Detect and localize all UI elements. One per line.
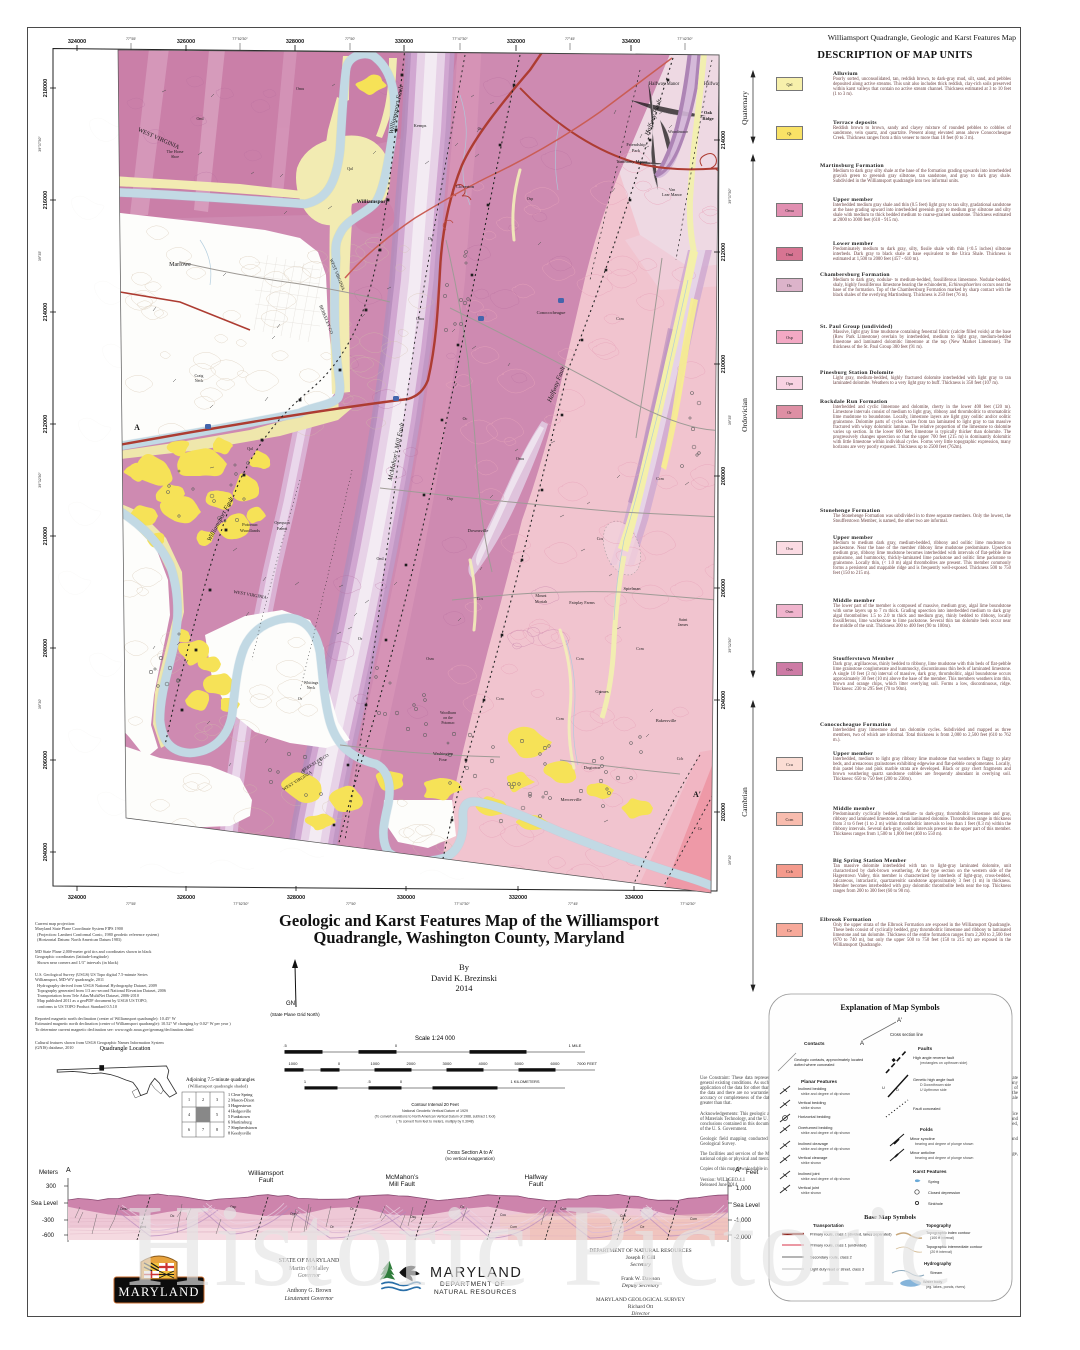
svg-text:77°55′: 77°55′ (126, 902, 136, 906)
svg-text:A: A (134, 423, 140, 432)
svg-text:6 Martinsburg: 6 Martinsburg (228, 1120, 253, 1125)
svg-text:218000: 218000 (43, 79, 49, 97)
svg-text:Cloverton: Cloverton (456, 184, 475, 189)
svg-text:328000: 328000 (286, 39, 304, 45)
svg-text:6000: 6000 (551, 1061, 561, 1066)
svg-text:Ccm: Ccm (496, 696, 504, 701)
svg-text:204000: 204000 (43, 843, 49, 861)
svg-text:Oml: Oml (376, 556, 384, 561)
svg-text:324000: 324000 (68, 895, 86, 901)
svg-text:208000: 208000 (43, 639, 49, 657)
svg-text:Ccm: Ccm (576, 656, 584, 661)
svg-text:1: 1 (188, 1097, 190, 1102)
svg-text:strike shown: strike shown (801, 1106, 821, 1110)
svg-text:(To convert elevations to Nort: (To convert elevations to North American… (375, 1115, 496, 1119)
svg-text:77°55′: 77°55′ (126, 37, 136, 41)
svg-text:Williamsport: Williamsport (356, 199, 387, 205)
svg-text:Genetic high angle fault: Genetic high angle fault (913, 1077, 955, 1082)
svg-text:strike shown: strike shown (801, 1161, 821, 1165)
svg-text:1 KILOMETERS: 1 KILOMETERS (510, 1079, 539, 1084)
svg-text:39°37′30″: 39°37′30″ (728, 188, 732, 204)
svg-text:Shoe: Shoe (171, 154, 179, 159)
svg-text:Conococheague: Conococheague (537, 310, 566, 315)
svg-text:39°35′: 39°35′ (728, 415, 732, 425)
svg-text:Folds: Folds (920, 1127, 933, 1133)
svg-text:39°30′: 39°30′ (728, 855, 732, 865)
svg-text:Neck: Neck (195, 378, 203, 383)
svg-text:Ccb: Ccb (677, 756, 683, 761)
svg-text:39°35′: 39°35′ (38, 251, 42, 261)
svg-text:strike and degree of dip shown: strike and degree of dip shown (801, 1131, 850, 1135)
svg-text:Quadrangle Location: Quadrangle Location (100, 1046, 151, 1052)
svg-text:7000 FEET: 7000 FEET (577, 1061, 598, 1066)
svg-text:Or: Or (298, 696, 303, 701)
svg-text:Grimes: Grimes (595, 689, 608, 694)
svg-text:Bakersville: Bakersville (656, 718, 677, 723)
svg-text:Oc: Oc (463, 416, 468, 421)
svg-text:Spielman: Spielman (624, 586, 642, 591)
svg-text:Ordovician: Ordovician (740, 398, 749, 432)
svg-text:James: James (678, 622, 689, 627)
svg-text:334000: 334000 (625, 895, 643, 901)
svg-text:212000: 212000 (43, 415, 49, 433)
svg-text:Inclined joint: Inclined joint (798, 1171, 821, 1176)
svg-text:bearing and degree of plunge s: bearing and degree of plunge shown (915, 1142, 973, 1146)
svg-text:Scale 1:24 000: Scale 1:24 000 (415, 1036, 456, 1042)
svg-text:Halfway Manor: Halfway Manor (649, 82, 680, 87)
svg-text:(rectangles on upthrown side): (rectangles on upthrown side) (920, 1061, 967, 1065)
svg-text:Woodlands: Woodlands (240, 528, 260, 533)
svg-text:39°32′30″: 39°32′30″ (728, 637, 732, 653)
svg-text:77°50′: 77°50′ (346, 902, 356, 906)
svg-text:dotted where concealed: dotted where concealed (794, 1063, 834, 1067)
svg-text:Ccu: Ccu (477, 596, 483, 601)
svg-text:1000: 1000 (289, 1061, 299, 1066)
svg-text:0: 0 (395, 1043, 398, 1048)
svg-text:77°45′: 77°45′ (568, 902, 578, 906)
svg-text:216000: 216000 (43, 191, 49, 209)
svg-text:Minor syncline: Minor syncline (910, 1136, 935, 1141)
svg-text:77°47′30″: 77°47′30″ (454, 902, 470, 906)
svg-text:3 Hagerstown: 3 Hagerstown (228, 1103, 252, 1108)
svg-text:GN: GN (286, 1001, 295, 1007)
svg-text:328000: 328000 (287, 895, 305, 901)
svg-text:2000: 2000 (407, 1061, 417, 1066)
svg-text:214000: 214000 (721, 131, 727, 149)
svg-text:Woodburn: Woodburn (440, 711, 456, 715)
svg-text:2: 2 (202, 1097, 204, 1102)
svg-text:Adjoining 7.5-minute quadrangl: Adjoining 7.5-minute quadrangles (186, 1078, 255, 1083)
svg-text:Quaternary: Quaternary (740, 91, 749, 125)
svg-text:Oak: Oak (704, 110, 713, 115)
svg-text:A′: A′ (897, 1018, 903, 1024)
svg-text:(Williamsport quadrangle shade: (Williamsport quadrangle shaded) (188, 1084, 248, 1089)
svg-text:5 Funkstown: 5 Funkstown (228, 1114, 251, 1119)
svg-text:77°52′30″: 77°52′30″ (232, 37, 248, 41)
svg-text:334000: 334000 (622, 39, 640, 45)
svg-text:Downsville: Downsville (468, 528, 489, 533)
svg-text:Washington: Washington (433, 751, 454, 756)
svg-text:Or: Or (358, 636, 363, 641)
svg-text:Omu: Omu (416, 316, 424, 321)
svg-text:6: 6 (188, 1127, 190, 1132)
svg-text:Mercerville: Mercerville (561, 797, 582, 802)
svg-text:Qal: Qal (247, 446, 254, 451)
svg-text:Osm: Osm (426, 656, 434, 661)
svg-text:206000: 206000 (721, 579, 727, 597)
svg-text:Horizontal bedding: Horizontal bedding (798, 1114, 830, 1119)
svg-text:Dogtown: Dogtown (584, 765, 601, 770)
svg-text:D: D (896, 1087, 899, 1092)
svg-text:77°42′30″: 77°42′30″ (677, 37, 693, 41)
svg-text:0: 0 (400, 1079, 403, 1084)
svg-text:39°32′30″: 39°32′30″ (38, 472, 42, 488)
svg-text:3: 3 (216, 1097, 218, 1102)
svg-text:Omu: Omu (516, 456, 524, 461)
svg-text:strike and degree of dip shown: strike and degree of dip shown (801, 1092, 850, 1096)
svg-text:Ccm: Ccm (616, 316, 624, 321)
svg-text:High angle reverse fault: High angle reverse fault (913, 1055, 955, 1060)
svg-text:7: 7 (202, 1127, 204, 1132)
svg-text:212000: 212000 (721, 243, 727, 261)
svg-text:Mount: Mount (535, 593, 547, 598)
svg-text:Friendship: Friendship (626, 142, 646, 147)
svg-text:D Downthrown side: D Downthrown side (920, 1083, 951, 1087)
svg-text:8 Keedysville: 8 Keedysville (228, 1131, 251, 1136)
svg-text:Contour Interval 20 Feet: Contour Interval 20 Feet (411, 1102, 459, 1107)
svg-text:Ccm: Ccm (636, 646, 644, 651)
svg-text:7 Shepherdstown: 7 Shepherdstown (228, 1125, 258, 1130)
svg-text:202000: 202000 (721, 803, 727, 821)
svg-text:Ce: Ce (698, 826, 703, 831)
svg-text:on the: on the (443, 716, 453, 720)
svg-text:Potomac: Potomac (441, 721, 455, 725)
svg-text:Marlowe: Marlowe (169, 262, 191, 268)
svg-text:332000: 332000 (509, 895, 527, 901)
svg-text:Omu: Omu (296, 86, 304, 91)
svg-text:Opequon: Opequon (274, 520, 290, 525)
svg-text:Woodmoor: Woodmoor (668, 129, 689, 134)
svg-text:(State Plane Grid North): (State Plane Grid North) (270, 1012, 320, 1017)
svg-text:210000: 210000 (43, 527, 49, 545)
svg-text:Inclined cleavage: Inclined cleavage (798, 1141, 828, 1146)
svg-text:Farms: Farms (277, 526, 288, 531)
svg-text:Park: Park (632, 148, 641, 153)
svg-text:1 MILE: 1 MILE (569, 1043, 582, 1048)
svg-text:Minor anticline: Minor anticline (910, 1150, 935, 1155)
svg-text:330000: 330000 (395, 39, 413, 45)
svg-text:Ccu: Ccu (597, 536, 603, 541)
svg-text:Potomac: Potomac (242, 522, 258, 527)
svg-text:208000: 208000 (721, 467, 727, 485)
svg-text:strike and degree of dip shown: strike and degree of dip shown (801, 1147, 850, 1151)
svg-text:Cross section line: Cross section line (890, 1032, 924, 1037)
svg-text:Fairplay Farms: Fairplay Farms (569, 600, 595, 605)
svg-text:Oc: Oc (478, 126, 483, 131)
svg-text:206000: 206000 (43, 751, 49, 769)
svg-text:Ccm: Ccm (656, 476, 664, 481)
svg-text:77°50′: 77°50′ (345, 37, 355, 41)
svg-text:77°45′: 77°45′ (565, 37, 575, 41)
svg-text:1 Clear Spring: 1 Clear Spring (228, 1092, 253, 1097)
svg-text:Fault concealed: Fault concealed (913, 1106, 940, 1111)
svg-text:bearing and degree of plunge s: bearing and degree of plunge shown (915, 1156, 973, 1160)
svg-text:326000: 326000 (177, 895, 195, 901)
svg-text:2 Mason-Dixon: 2 Mason-Dixon (228, 1098, 255, 1103)
svg-text:332000: 332000 (507, 39, 525, 45)
svg-text:Faults: Faults (918, 1046, 932, 1052)
svg-text:Oml: Oml (196, 116, 204, 121)
svg-text:Neck: Neck (307, 685, 315, 690)
svg-text:204000: 204000 (721, 691, 727, 709)
svg-text:5: 5 (216, 1112, 218, 1117)
svg-text:U Upthrown side: U Upthrown side (920, 1088, 947, 1092)
svg-text:0: 0 (338, 1061, 341, 1066)
svg-text:A: A (860, 1041, 864, 1047)
svg-text:Overturned bedding: Overturned bedding (798, 1125, 832, 1130)
svg-text:5000: 5000 (515, 1061, 525, 1066)
svg-text:4 Hedgesville: 4 Hedgesville (228, 1109, 251, 1114)
svg-text:Vertical cleavage: Vertical cleavage (798, 1155, 827, 1160)
svg-text:A: A (66, 1167, 71, 1174)
svg-text:Lear Manor: Lear Manor (662, 192, 682, 197)
svg-text:324000: 324000 (68, 39, 86, 45)
svg-text:77°47′30″: 77°47′30″ (452, 37, 468, 41)
svg-text:Contacts: Contacts (804, 1041, 825, 1047)
svg-text:Kemps: Kemps (414, 123, 427, 128)
svg-text:4000: 4000 (479, 1061, 489, 1066)
svg-text:326000: 326000 (177, 39, 195, 45)
svg-text:( To convert from feet to mete: ( To convert from feet to meters, multip… (396, 1120, 473, 1124)
svg-text:Cambrian: Cambrian (740, 787, 749, 817)
svg-text:8: 8 (216, 1127, 218, 1132)
svg-text:Osp: Osp (447, 496, 453, 501)
svg-text:4: 4 (188, 1112, 191, 1117)
svg-text:Or: Or (428, 236, 433, 241)
svg-text:Tammany Manor: Tammany Manor (616, 159, 648, 164)
svg-text:Osp: Osp (527, 196, 533, 201)
svg-text:.5: .5 (283, 1043, 287, 1048)
svg-text:.5: .5 (367, 1079, 371, 1084)
svg-text:210000: 210000 (721, 355, 727, 373)
svg-text:214000: 214000 (43, 303, 49, 321)
svg-text:3000: 3000 (443, 1061, 453, 1066)
svg-text:U: U (882, 1085, 885, 1090)
svg-text:39°37′30″: 39°37′30″ (38, 136, 42, 152)
svg-text:Planar Features: Planar Features (801, 1079, 837, 1085)
svg-text:Geologic contacts, approximate: Geologic contacts, approximately located (794, 1058, 863, 1062)
svg-text:Meters: Meters (39, 1169, 58, 1176)
svg-text:Ridge: Ridge (702, 116, 713, 121)
svg-text:Explanation of Map Symbols: Explanation of Map Symbols (840, 1003, 939, 1012)
svg-text:77°52′30″: 77°52′30″ (233, 902, 249, 906)
svg-text:Karst Features: Karst Features (913, 1169, 947, 1175)
svg-text:Halfway: Halfway (704, 82, 721, 87)
svg-text:1000: 1000 (371, 1061, 381, 1066)
svg-text:A′: A′ (735, 1167, 742, 1174)
svg-text:Feet: Feet (746, 1169, 759, 1176)
svg-text:Four: Four (439, 757, 448, 762)
svg-text:77°42′30″: 77°42′30″ (680, 902, 696, 906)
svg-text:Moriah: Moriah (535, 599, 548, 604)
svg-text:National Geodetic Vertical Dat: National Geodetic Vertical Datum of 1929 (402, 1109, 468, 1113)
svg-text:Qal: Qal (347, 166, 354, 171)
svg-text:Ccm: Ccm (556, 716, 564, 721)
svg-text:A′: A′ (693, 790, 701, 799)
svg-text:39°30′: 39°30′ (38, 699, 42, 709)
svg-text:Vertical bedding: Vertical bedding (798, 1100, 826, 1105)
svg-text:330000: 330000 (397, 895, 415, 901)
svg-text:Inclined bedding: Inclined bedding (798, 1086, 826, 1091)
